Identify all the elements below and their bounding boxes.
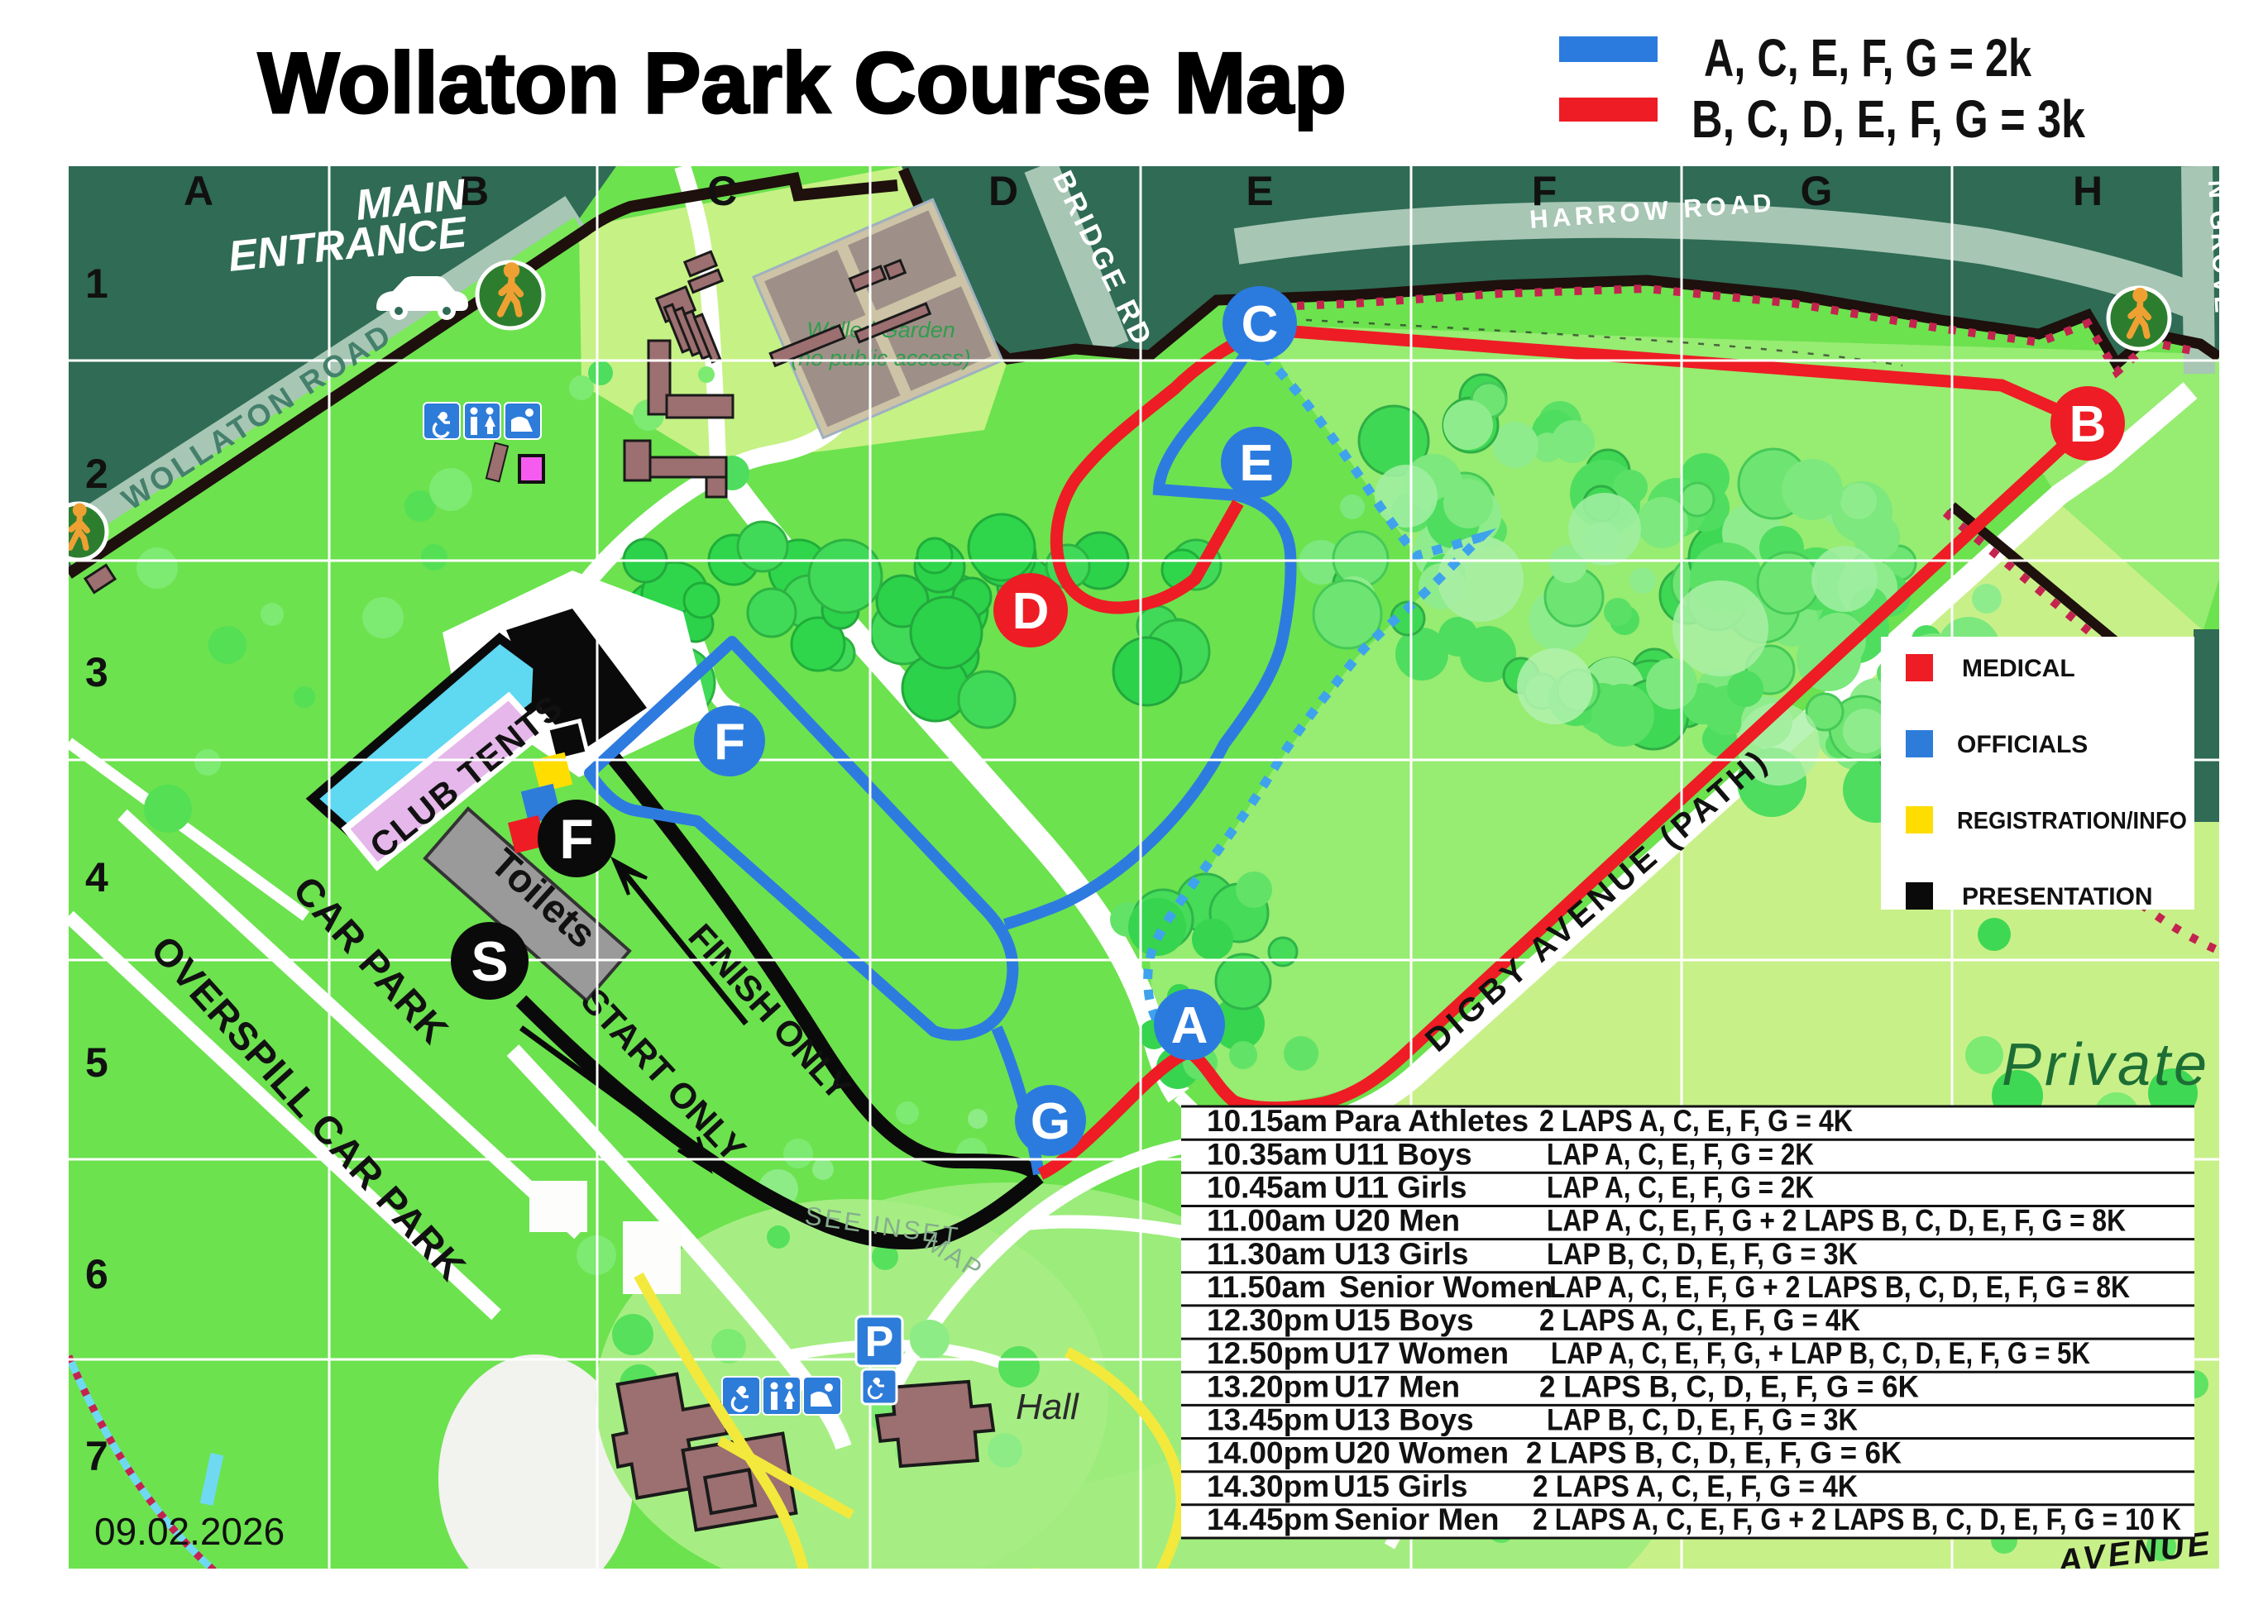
svg-text:U20 Men: U20 Men (1334, 1204, 1460, 1238)
svg-text:LAP A, C, E, F, G, + LAP B, C,: LAP A, C, E, F, G, + LAP B, C, D, E, F, … (1551, 1336, 2090, 1370)
svg-text:U20 Women: U20 Women (1334, 1436, 1509, 1470)
svg-text:LAP A, C, E, F, G = 2K: LAP A, C, E, F, G = 2K (1547, 1171, 1814, 1205)
svg-text:E: E (1246, 168, 1273, 214)
svg-text:REGISTRATION/INFO: REGISTRATION/INFO (1957, 808, 2187, 834)
svg-text:D: D (988, 168, 1018, 214)
svg-text:2 LAPS A, C, E, F, G = 4K: 2 LAPS A, C, E, F, G = 4K (1539, 1104, 1853, 1138)
svg-text:14.30pm: 14.30pm (1207, 1469, 1329, 1503)
svg-text:S: S (471, 930, 508, 993)
svg-text:14.45pm: 14.45pm (1207, 1502, 1329, 1536)
svg-text:F: F (559, 808, 594, 871)
svg-text:U15 Girls: U15 Girls (1333, 1469, 1467, 1503)
svg-text:7: 7 (85, 1433, 108, 1479)
svg-text:LAP A, C, E, F, G + 2 LAPS B,: LAP A, C, E, F, G + 2 LAPS B, C, D, E, F… (1549, 1270, 2130, 1304)
svg-text:2 LAPS A, C, E, F, G = 4K: 2 LAPS A, C, E, F, G = 4K (1539, 1303, 1860, 1337)
svg-text:OFFICIALS: OFFICIALS (1957, 731, 2088, 758)
svg-text:5: 5 (85, 1039, 108, 1086)
svg-text:U13 Boys: U13 Boys (1334, 1403, 1474, 1437)
svg-text:Private: Private (2002, 1032, 2210, 1098)
svg-text:2 LAPS B, C, D, E, F, G = 6K: 2 LAPS B, C, D, E, F, G = 6K (1526, 1436, 1902, 1470)
svg-text:C: C (1242, 296, 1279, 353)
svg-text:D: D (1012, 583, 1050, 640)
svg-text:10.15am: 10.15am (1207, 1104, 1328, 1138)
svg-text:Senior Women: Senior Women (1339, 1270, 1553, 1304)
svg-text:A, C, E, F, G = 2k: A, C, E, F, G = 2k (1704, 28, 2031, 88)
svg-text:H: H (2073, 168, 2103, 214)
svg-text:Senior Men: Senior Men (1334, 1502, 1499, 1536)
svg-text:2 LAPS B, C, D, E, F, G = 6K: 2 LAPS B, C, D, E, F, G = 6K (1539, 1369, 1919, 1403)
svg-text:U17 Men: U17 Men (1334, 1369, 1460, 1403)
svg-text:G: G (1031, 1093, 1070, 1150)
svg-text:4: 4 (85, 854, 108, 900)
svg-text:1: 1 (85, 260, 108, 307)
svg-text:C: C (707, 168, 737, 214)
svg-text:12.30pm: 12.30pm (1207, 1303, 1329, 1337)
svg-text:U15 Boys: U15 Boys (1334, 1303, 1474, 1337)
svg-text:Para Athletes: Para Athletes (1334, 1104, 1529, 1138)
svg-text:10.45am: 10.45am (1207, 1171, 1328, 1205)
svg-text:F: F (714, 714, 745, 771)
svg-text:09.02.2026: 09.02.2026 (94, 1510, 285, 1553)
svg-text:U11 Girls: U11 Girls (1334, 1171, 1467, 1205)
svg-text:B: B (2069, 396, 2107, 453)
svg-text:MEDICAL: MEDICAL (1962, 655, 2075, 682)
svg-text:2: 2 (85, 451, 108, 497)
svg-text:A: A (184, 168, 213, 214)
svg-text:13.45pm: 13.45pm (1207, 1403, 1329, 1437)
svg-text:2 LAPS A, C, E, F, G = 4K: 2 LAPS A, C, E, F, G = 4K (1533, 1469, 1858, 1503)
svg-text:LAP B, C, D, E, F, G = 3K: LAP B, C, D, E, F, G = 3K (1547, 1403, 1858, 1437)
svg-text:13.20pm: 13.20pm (1207, 1369, 1329, 1403)
svg-text:E: E (1239, 435, 1273, 492)
svg-text:PRESENTATION: PRESENTATION (1962, 883, 2153, 910)
svg-text:U11 Boys: U11 Boys (1334, 1137, 1472, 1171)
svg-text:14.00pm: 14.00pm (1207, 1436, 1329, 1470)
svg-text:LAP A, C, E, F, G = 2K: LAP A, C, E, F, G = 2K (1547, 1137, 1814, 1171)
svg-text:10.35am: 10.35am (1207, 1137, 1328, 1171)
svg-text:Wollaton Park Course Map: Wollaton Park Course Map (258, 36, 1347, 131)
svg-text:12.50pm: 12.50pm (1207, 1336, 1329, 1370)
svg-text:11.00am: 11.00am (1207, 1204, 1326, 1238)
svg-text:U17 Women: U17 Women (1334, 1336, 1509, 1370)
svg-text:P: P (865, 1318, 894, 1366)
svg-text:11.50am: 11.50am (1207, 1270, 1326, 1304)
svg-text:A: A (1171, 997, 1208, 1054)
svg-text:6: 6 (85, 1251, 108, 1297)
svg-text:3: 3 (85, 649, 108, 695)
svg-text:2 LAPS A, C, E, F, G + 2 LAPS: 2 LAPS A, C, E, F, G + 2 LAPS B, C, D, E… (1533, 1502, 2181, 1536)
svg-text:LAP B, C, D, E, F, G = 3K: LAP B, C, D, E, F, G = 3K (1547, 1237, 1858, 1271)
svg-text:11.30am: 11.30am (1207, 1237, 1326, 1271)
svg-text:U13 Girls: U13 Girls (1334, 1237, 1468, 1271)
svg-text:LAP A, C, E, F, G + 2 LAPS B,: LAP A, C, E, F, G + 2 LAPS B, C, D, E, F… (1547, 1204, 2126, 1238)
svg-text:B, C, D, E, F, G = 3k: B, C, D, E, F, G = 3k (1691, 89, 2085, 149)
svg-text:Hall: Hall (1016, 1387, 1079, 1427)
svg-text:G: G (1801, 168, 1833, 214)
